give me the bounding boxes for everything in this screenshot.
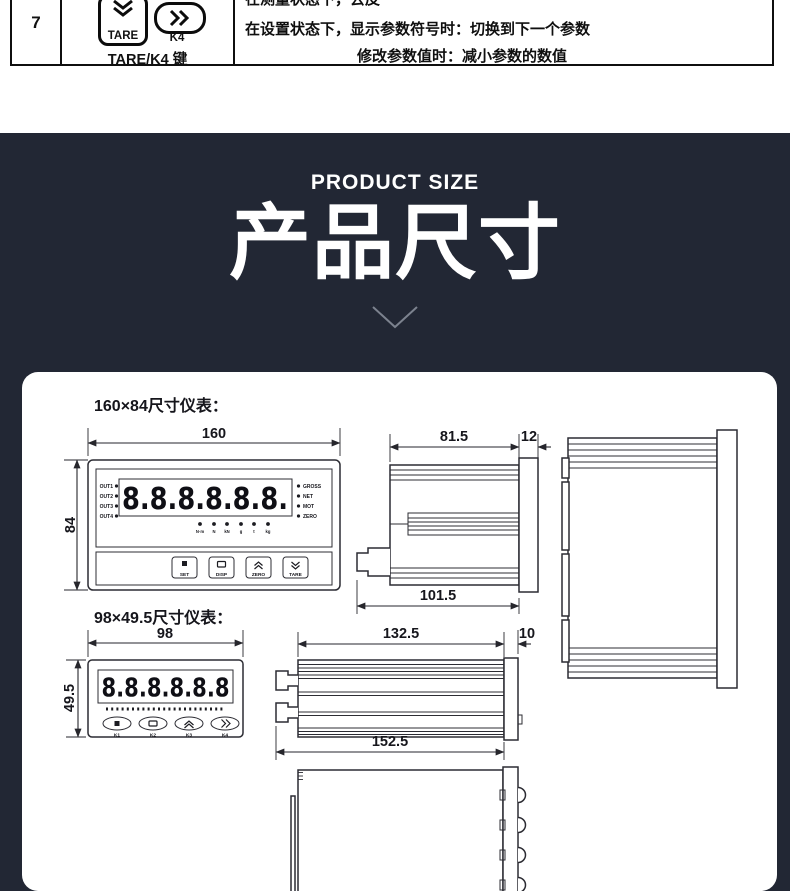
mounting-bracket xyxy=(291,796,295,891)
meter2-top-view xyxy=(291,767,526,891)
product-size-section: PRODUCT SIZE 产品尺寸 160×84尺寸仪表： xyxy=(0,133,790,891)
k4-key-icon xyxy=(154,2,206,34)
chevron-down-icon xyxy=(371,304,419,330)
meter1-top-view xyxy=(562,430,737,688)
meter2-bezel-dim: 10 xyxy=(519,626,535,642)
double-chevron-down-icon xyxy=(111,0,135,18)
zero-label: ZERO xyxy=(303,514,317,520)
meter1-height-dim: 84 xyxy=(63,517,79,533)
net-label: NET xyxy=(303,494,313,500)
meter2-height-dim: 49.5 xyxy=(62,684,78,712)
key-caption: TARE/K4 键 xyxy=(62,48,233,68)
svg-text:K3: K3 xyxy=(186,733,192,739)
out2-label: OUT2 xyxy=(100,494,114,500)
svg-text:K4: K4 xyxy=(222,733,228,739)
description-line: 修改参数值时：减小参数的数值 xyxy=(245,45,768,66)
section-title: 产品尺寸 xyxy=(0,201,790,288)
row-number: 7 xyxy=(31,13,40,33)
meter1-side-view: 81.5 12 xyxy=(357,429,551,614)
description-line: 在设置状态下，显示参数符号时：切换到下一个参数 xyxy=(245,18,768,39)
connector-plug xyxy=(357,548,390,576)
svg-text:TARE: TARE xyxy=(289,572,303,578)
meter2-total-depth-dim: 152.5 xyxy=(372,734,408,750)
double-chevron-right-icon xyxy=(169,9,191,27)
product-dimensions-panel: 160×84尺寸仪表： 160 84 8.8.8 xyxy=(22,372,777,891)
description-line: 在测量状态下，去皮 xyxy=(245,0,768,9)
key-function-table: 7 TARE K4 TARE/K4 键 xyxy=(0,0,790,68)
meter2-side-view: 132.5 10 xyxy=(276,626,535,760)
unit-label: N xyxy=(212,529,215,534)
tare-key-label: TARE xyxy=(101,30,145,42)
key-description-cell: 在测量状态下，去皮 在设置状态下，显示参数符号时：切换到下一个参数 修改参数值时… xyxy=(235,0,772,64)
unit-label: kN xyxy=(224,529,229,534)
terminal-block xyxy=(562,620,569,662)
svg-text:ZERO: ZERO xyxy=(252,572,266,578)
terminal-block xyxy=(562,482,569,550)
terminal-block xyxy=(562,458,569,478)
meter1-width-dim: 160 xyxy=(202,426,226,442)
meter2-width-dim: 98 xyxy=(157,626,173,642)
k4-key-label: K4 xyxy=(154,32,200,44)
meter1-total-depth-dim: 101.5 xyxy=(420,588,456,604)
unit-label: g xyxy=(240,529,243,534)
key-icon-cell: TARE K4 TARE/K4 键 xyxy=(62,0,235,64)
meter2-depth-dim: 132.5 xyxy=(383,626,419,642)
bezel-scallop xyxy=(518,818,526,833)
mot-label: MOT xyxy=(303,504,314,510)
svg-text:DISP: DISP xyxy=(216,572,228,578)
square-icon xyxy=(115,721,120,726)
row-number-cell: 7 xyxy=(12,0,62,64)
meter1-depth-dim: 81.5 xyxy=(440,429,468,445)
unit-label: kg xyxy=(266,529,271,534)
unit-label: N·m xyxy=(196,529,204,534)
connector-plug xyxy=(276,703,298,722)
bezel-scallop xyxy=(518,848,526,863)
svg-text:SET: SET xyxy=(180,572,189,578)
section-subtitle: PRODUCT SIZE xyxy=(0,133,790,195)
meter2-caption: 98×49.5尺寸仪表： xyxy=(94,608,232,627)
gross-label: GROSS xyxy=(303,484,322,490)
dimension-drawings: 160×84尺寸仪表： 160 84 8.8.8 xyxy=(22,372,777,891)
svg-text:K1: K1 xyxy=(114,733,120,739)
bezel-scallop xyxy=(518,788,526,803)
connector-plug xyxy=(276,671,298,690)
tare-key-icon: TARE xyxy=(98,0,148,46)
bezel-scallop xyxy=(518,878,526,891)
out1-label: OUT1 xyxy=(100,484,114,490)
meter1-caption: 160×84尺寸仪表： xyxy=(94,396,228,415)
square-icon xyxy=(182,561,187,566)
terminal-block xyxy=(562,554,569,616)
page: 7 TARE K4 TARE/K4 键 xyxy=(0,0,790,891)
out4-label: OUT4 xyxy=(100,514,114,520)
meter1-bezel-dim: 12 xyxy=(521,429,537,445)
svg-text:K2: K2 xyxy=(150,733,156,739)
meter1-display-digits: 8.8.8.8.8.8. xyxy=(122,482,288,517)
meter2-front-view: 98×49.5尺寸仪表： 98 49.5 8.8.8.8.8.8 xyxy=(62,608,243,739)
out3-label: OUT3 xyxy=(100,504,114,510)
meter1-front-view: 160×84尺寸仪表： 160 84 8.8.8 xyxy=(63,396,340,590)
table-row: 7 TARE K4 TARE/K4 键 xyxy=(10,0,774,66)
meter2-display-digits: 8.8.8.8.8.8 xyxy=(102,674,230,704)
